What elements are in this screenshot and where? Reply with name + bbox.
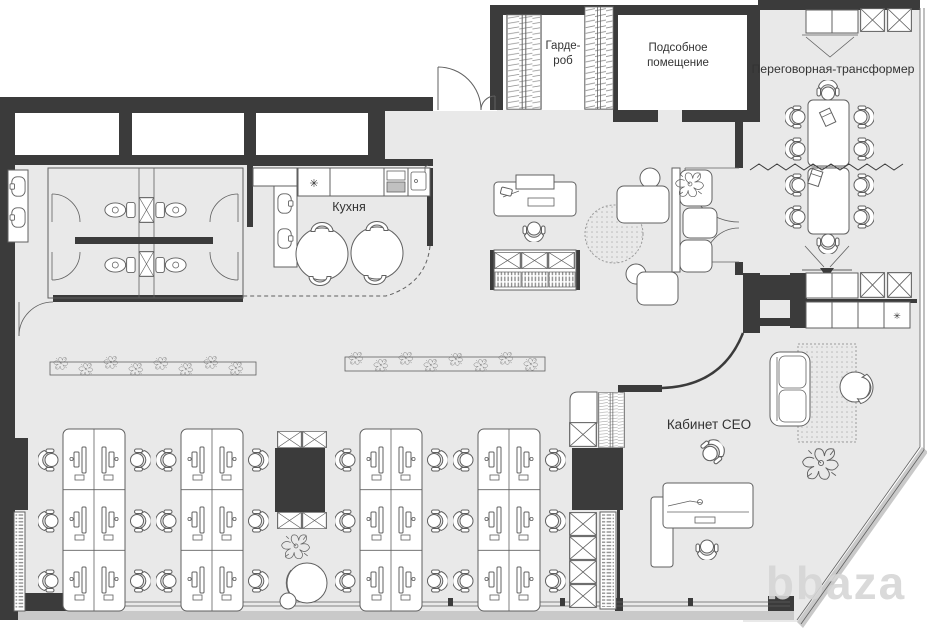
sofa-module	[637, 272, 678, 305]
closet-rack	[507, 15, 541, 109]
toilet	[156, 202, 186, 217]
kitchen-table	[351, 227, 403, 279]
bench-block-1	[38, 429, 151, 611]
wall-niche	[132, 113, 244, 155]
ceo-sofa	[770, 352, 810, 426]
rounded-cabinet	[570, 392, 597, 423]
sofa-module	[680, 170, 712, 206]
left-column	[0, 438, 28, 510]
ceo-wall	[618, 385, 662, 392]
washbasin	[278, 194, 293, 213]
floorplan: ✳	[0, 0, 927, 629]
x-cabinet	[888, 9, 912, 32]
sofa-module	[680, 240, 712, 272]
sofa-module	[617, 186, 669, 223]
x-cabinet	[570, 561, 597, 584]
closet-rack	[599, 392, 625, 447]
x-cabinet	[303, 431, 327, 447]
kitchen-cabinet	[253, 168, 297, 186]
counter-cabinet	[832, 302, 858, 328]
toilet	[105, 257, 135, 272]
radiator	[14, 512, 25, 611]
wall-niche	[256, 113, 368, 155]
closet-rack	[585, 7, 613, 109]
watermark: bbaza	[766, 557, 906, 609]
sofa-module	[683, 208, 717, 238]
ceo-office-label: Кабинет CEO	[667, 417, 751, 432]
fridge-symbol: ✳	[893, 311, 901, 321]
plumbing-chase	[139, 252, 153, 277]
x-cabinet	[303, 512, 327, 528]
x-cabinet	[861, 273, 885, 298]
bench-block-4	[453, 429, 566, 611]
reception-monitor	[516, 175, 554, 189]
washbasin	[10, 177, 25, 196]
entrance-door	[438, 67, 495, 110]
floorplan-svg: ✳	[0, 0, 927, 629]
pouf	[640, 168, 660, 188]
bench-block-2	[156, 429, 269, 611]
storage-cabinet	[806, 273, 832, 298]
storage-cabinet	[806, 10, 832, 33]
utility-label: Подсобное	[648, 42, 707, 54]
top-rooms-wall	[503, 5, 760, 15]
plumbing-chase	[139, 198, 153, 223]
x-cabinet	[278, 431, 302, 447]
meeting-left-wall	[735, 122, 743, 168]
x-cabinet	[861, 9, 885, 32]
bench-block-3	[335, 429, 448, 611]
svg-text:помещение: помещение	[647, 57, 709, 69]
column-center	[275, 448, 325, 512]
kitchen-counter	[330, 168, 384, 196]
kitchen-table	[296, 228, 348, 280]
bottom-facade-slab	[18, 611, 794, 620]
x-cabinet	[888, 273, 912, 298]
storage-cabinet	[832, 10, 858, 33]
fridge-symbol: ✳	[309, 178, 318, 190]
washbasin	[278, 229, 293, 248]
kitchen-label: Кухня	[332, 200, 365, 214]
pouf	[280, 593, 296, 609]
ceo-desk	[663, 483, 753, 528]
counter-cabinet	[806, 302, 832, 328]
x-cabinet	[570, 513, 597, 536]
counter-cabinet	[858, 302, 884, 328]
toilet	[105, 202, 135, 217]
storage-cabinet	[832, 273, 858, 298]
x-cabinet	[570, 423, 597, 447]
toilet	[156, 257, 186, 272]
wall-niche	[7, 113, 119, 155]
wc-divider-wall	[75, 237, 213, 244]
wardrobe-label: Гарде-	[545, 40, 580, 52]
meeting-room-label: Переговорная-трансформер	[751, 62, 914, 76]
column-east	[572, 448, 623, 510]
washbasin	[10, 208, 25, 227]
kitchen-top-wall	[247, 159, 433, 166]
x-cabinet	[570, 585, 597, 608]
x-cabinet	[570, 537, 597, 560]
x-cabinet	[278, 512, 302, 528]
svg-text:роб: роб	[553, 55, 573, 67]
